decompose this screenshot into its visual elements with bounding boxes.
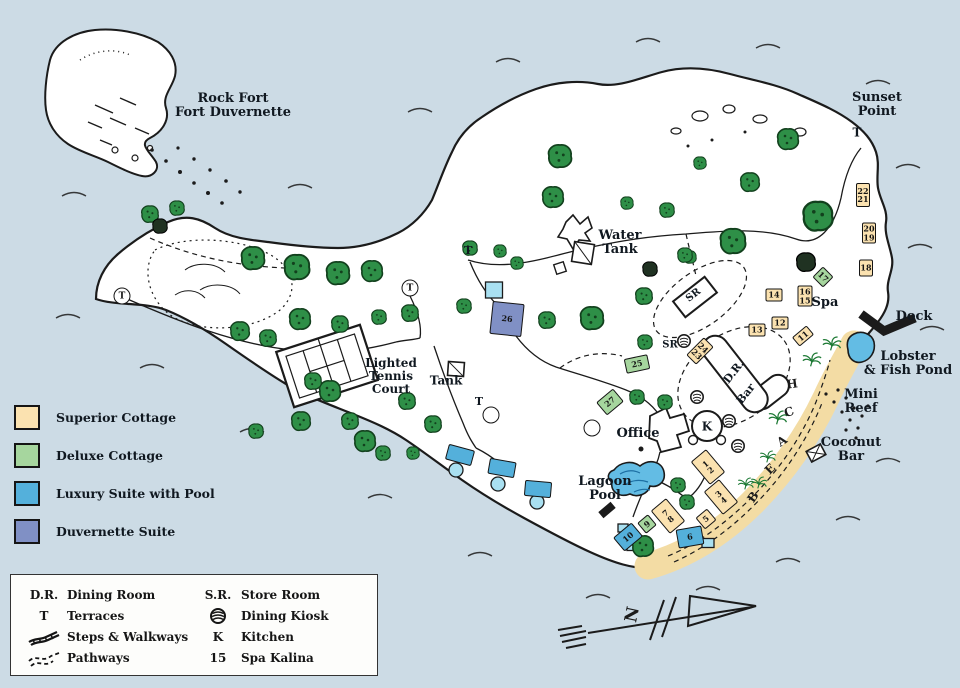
label-tennis-court: LightedTennisCourt [365, 357, 417, 395]
tree [231, 322, 250, 340]
cottage-13: 13 [749, 324, 766, 337]
dining-room-label: Dining Room [67, 588, 155, 602]
legend-pathways: Pathways [21, 648, 195, 669]
tree [260, 330, 277, 346]
luxury-suite-swatch [14, 481, 40, 506]
tree [457, 299, 472, 313]
spa-kalina-symbol: 15 [195, 651, 241, 665]
tree [376, 446, 391, 460]
cottage-22-21: 2221 [856, 183, 870, 207]
terrace-circle: T [114, 288, 131, 305]
pathways-icon [21, 649, 67, 667]
tree [694, 157, 706, 169]
label-sunset-point: SunsetPoint [852, 91, 902, 119]
luxury-suite-label: Luxury Suite with Pool [56, 486, 215, 501]
tree [621, 197, 633, 209]
label-kitchen: K [702, 421, 712, 434]
compass-north-arrow: N [558, 596, 756, 648]
cottage-12: 12 [772, 317, 789, 330]
tree [305, 373, 322, 389]
cottage-20-19: 2019 [862, 223, 876, 244]
tree [332, 316, 349, 332]
map-symbol-legend: D.R. Dining Room T Terraces Steps & Walk… [10, 574, 378, 676]
tree [581, 307, 604, 330]
legend-steps-walkways: Steps & Walkways [21, 627, 195, 648]
superior-cottage-label: Superior Cottage [56, 410, 176, 425]
label-rock-fort: Rock FortFort Duvernette [175, 92, 291, 120]
tree [660, 203, 675, 217]
legend-terraces: T Terraces [21, 605, 195, 626]
label-sunset-terrace: T [853, 127, 862, 140]
tree [658, 395, 673, 409]
dining-kiosk-marker [732, 440, 744, 452]
tree [638, 335, 653, 349]
legend-dining-kiosk: Dining Kiosk [195, 605, 369, 626]
duvernette-suite-swatch [14, 519, 40, 544]
swimming-pool [486, 282, 503, 298]
tree [511, 257, 523, 269]
tree [407, 447, 419, 459]
legend-store-room: S.R. Store Room [195, 584, 369, 605]
legend-row-deluxe: Deluxe Cottage [14, 443, 215, 468]
label-mini-reef: MiniReef [844, 388, 878, 416]
swimming-pool [491, 477, 505, 491]
cottage-type-legend: Superior Cottage Deluxe Cottage Luxury S… [14, 405, 215, 557]
tree [543, 187, 564, 208]
tree [494, 245, 506, 257]
terrace-circle [584, 420, 601, 437]
label-store-room: SR [662, 341, 678, 352]
cottage-luxury [524, 480, 552, 498]
label-lagoon-pool: LagoonPool [578, 475, 631, 503]
tree [778, 129, 799, 150]
tree [327, 262, 350, 285]
tree [290, 309, 311, 330]
tree [242, 247, 265, 270]
label-terrace-north: T [464, 245, 472, 257]
store-room-symbol: S.R. [195, 588, 241, 602]
tree [249, 424, 264, 438]
rock-fort-islet [45, 30, 175, 177]
tree [721, 229, 746, 254]
steps-walkways-icon [21, 628, 67, 646]
superior-cottage-swatch [14, 405, 40, 430]
legend-column-2: S.R. Store Room Dining Kiosk K Kitchen 1… [195, 584, 369, 669]
deluxe-cottage-swatch [14, 443, 40, 468]
kitchen-symbol: K [195, 630, 241, 644]
dining-kiosk-marker [691, 391, 703, 403]
legend-row-duvernette: Duvernette Suite [14, 519, 215, 544]
tree [425, 416, 442, 432]
terrace-circle: T [402, 280, 419, 297]
label-coconut-bar: CoconutBar [821, 436, 882, 464]
duvernette-suite-label: Duvernette Suite [56, 524, 175, 539]
legend-dining-room: D.R. Dining Room [21, 584, 195, 605]
label-dock: Dock [896, 310, 933, 324]
label-office: Office [616, 427, 659, 441]
dark-tree [153, 219, 168, 233]
tree [362, 261, 383, 282]
tree [285, 255, 310, 280]
tree [292, 412, 311, 430]
tree [549, 145, 572, 168]
label-water-tank: WaterTank [598, 229, 641, 257]
compass-n-label: N [621, 605, 644, 624]
legend-kitchen: K Kitchen [195, 627, 369, 648]
tree [170, 201, 185, 215]
tree [539, 312, 556, 328]
dining-kiosk-marker [723, 415, 735, 427]
pathways-label: Pathways [67, 651, 130, 665]
cottage-26: 26 [489, 301, 524, 337]
legend-column-1: D.R. Dining Room T Terraces Steps & Walk… [21, 584, 195, 669]
tree [402, 305, 419, 321]
tree [680, 495, 695, 509]
dark-tree [797, 253, 816, 271]
tree [342, 413, 359, 429]
tree [355, 431, 376, 452]
cottage-18: 18 [859, 260, 873, 277]
label-lobster-fish-pond: Lobster& Fish Pond [864, 350, 952, 378]
beach-letter-H: H [785, 376, 798, 391]
legend-row-luxury: Luxury Suite with Pool [14, 481, 215, 506]
spa-kalina-label: Spa Kalina [241, 651, 314, 665]
path-dot [639, 447, 644, 452]
steps-walkways-label: Steps & Walkways [67, 630, 188, 644]
legend-row-superior: Superior Cottage [14, 405, 215, 430]
tree [320, 381, 341, 402]
cottage-14: 14 [766, 289, 783, 302]
dining-room-symbol: D.R. [21, 588, 67, 602]
tree [671, 478, 686, 492]
kitchen-label: Kitchen [241, 630, 294, 644]
tree [636, 288, 653, 304]
terrace-circle [483, 407, 500, 424]
resort-island-map: N Rock FortFort DuvernetteSunsetPointTWa… [0, 0, 960, 688]
tree [678, 248, 693, 262]
terraces-label: Terraces [67, 609, 124, 623]
legend-spa-kalina: 15 Spa Kalina [195, 648, 369, 669]
store-room-label: Store Room [241, 588, 320, 602]
label-tank: Tank [430, 375, 463, 388]
cottage-16-15: 1615 [798, 286, 813, 307]
dining-kiosk-label: Dining Kiosk [241, 609, 329, 623]
dark-tree [643, 262, 658, 276]
dining-kiosk-marker [678, 335, 690, 347]
dining-kiosk-icon [195, 607, 241, 625]
tree [372, 310, 387, 324]
tree [741, 173, 760, 191]
terraces-symbol: T [21, 609, 67, 623]
tree [803, 202, 832, 231]
tree [630, 390, 645, 404]
label-spa: Spa [812, 296, 839, 310]
label-terrace-mid: T [475, 396, 483, 408]
deluxe-cottage-label: Deluxe Cottage [56, 448, 163, 463]
swimming-pool [449, 463, 463, 477]
